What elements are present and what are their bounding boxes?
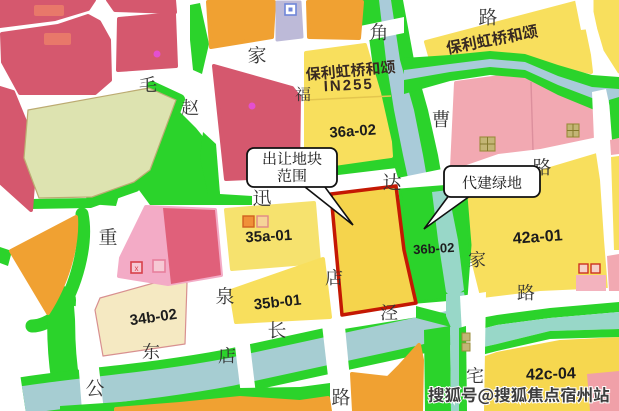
svg-text:公: 公: [85, 374, 104, 401]
svg-text:角: 角: [369, 18, 388, 45]
svg-text:曹: 曹: [431, 105, 450, 132]
svg-text:店: 店: [218, 342, 236, 368]
svg-text:东: 东: [142, 338, 160, 364]
svg-text:IN255: IN255: [323, 73, 374, 97]
svg-text:路: 路: [517, 279, 535, 305]
svg-text:店: 店: [325, 264, 343, 290]
svg-text:代建绿地: 代建绿地: [462, 172, 522, 193]
svg-text:x: x: [135, 264, 139, 273]
svg-text:家: 家: [468, 246, 486, 272]
svg-text:毛: 毛: [139, 71, 157, 97]
svg-text:路: 路: [331, 383, 350, 410]
svg-text:赵: 赵: [181, 94, 199, 120]
svg-text:35a-01: 35a-01: [245, 227, 293, 246]
svg-text:福: 福: [295, 82, 311, 105]
svg-text:家: 家: [247, 41, 266, 68]
svg-text:36a-02: 36a-02: [329, 121, 377, 141]
svg-text:迅: 迅: [252, 184, 271, 211]
svg-text:泉: 泉: [215, 282, 234, 309]
svg-text:路: 路: [478, 3, 497, 30]
svg-text:泾: 泾: [380, 299, 398, 325]
svg-text:42a-01: 42a-01: [512, 227, 563, 247]
svg-text:范围: 范围: [277, 165, 307, 186]
svg-text:搜狐号@搜狐焦点宿州站: 搜狐号@搜狐焦点宿州站: [428, 382, 610, 406]
svg-text:36b-02: 36b-02: [413, 240, 455, 257]
svg-text:重: 重: [98, 223, 117, 250]
svg-text:长: 长: [267, 316, 286, 343]
svg-text:达: 达: [382, 168, 401, 195]
